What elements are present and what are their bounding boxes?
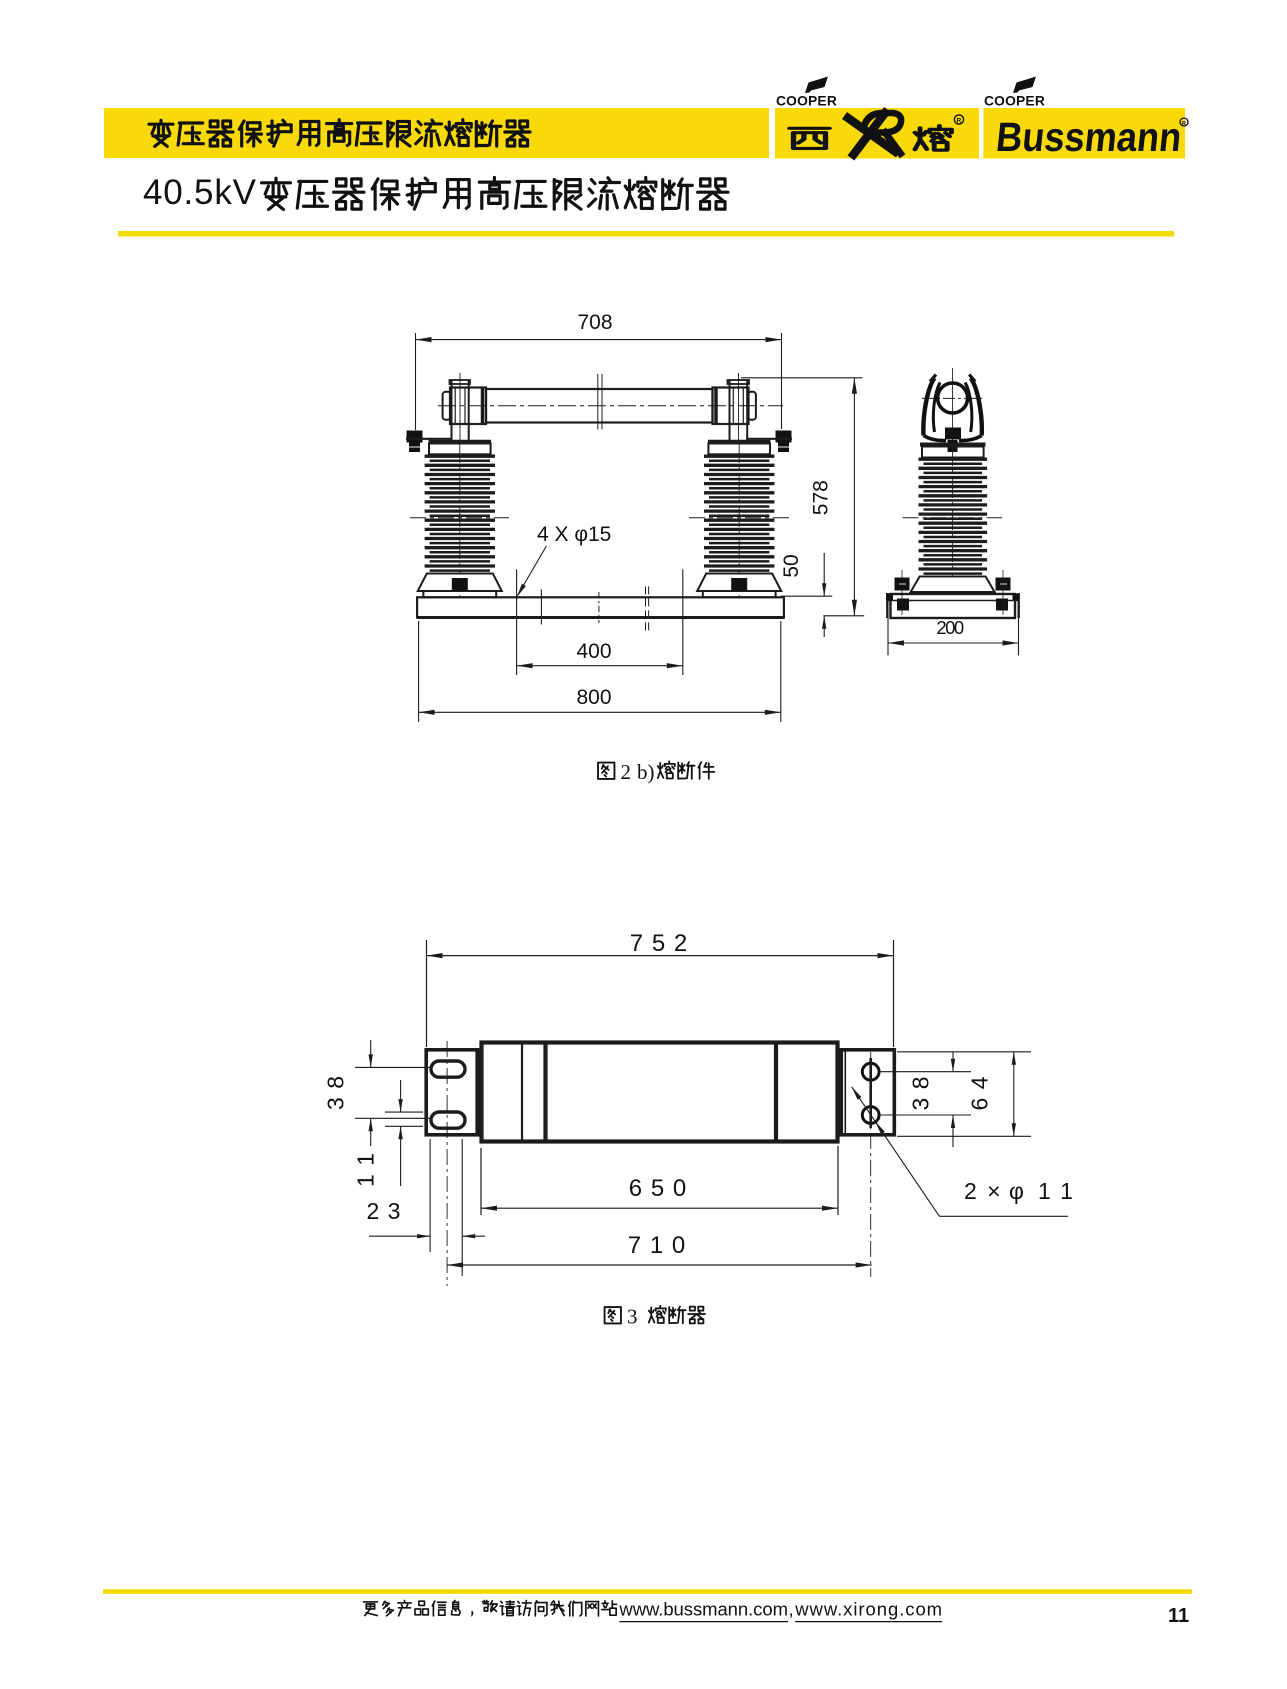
svg-text:800: 800 bbox=[576, 686, 611, 709]
svg-text:11: 11 bbox=[1168, 1605, 1189, 1627]
svg-text:708: 708 bbox=[577, 311, 612, 334]
svg-text:3: 3 bbox=[627, 1305, 638, 1329]
svg-text:4 X φ15: 4 X φ15 bbox=[537, 523, 611, 546]
svg-text:7 5 2: 7 5 2 bbox=[630, 930, 688, 957]
svg-text:www.xirong.com: www.xirong.com bbox=[794, 1599, 942, 1620]
svg-text:R: R bbox=[957, 118, 962, 125]
svg-text:2 3: 2 3 bbox=[367, 1198, 402, 1224]
svg-text:2: 2 bbox=[621, 760, 632, 784]
svg-text:3 8: 3 8 bbox=[908, 1076, 934, 1111]
svg-text:6 5 0: 6 5 0 bbox=[629, 1175, 687, 1202]
svg-text:2 ×: 2 × bbox=[964, 1178, 1003, 1204]
svg-text:Bussmann: Bussmann bbox=[994, 114, 1184, 160]
svg-text:578: 578 bbox=[810, 480, 833, 515]
svg-text:b): b) bbox=[637, 760, 655, 784]
svg-text:,: , bbox=[789, 1599, 794, 1620]
svg-text:400: 400 bbox=[576, 640, 611, 663]
svg-text:200: 200 bbox=[936, 617, 964, 638]
svg-text:7 1 0: 7 1 0 bbox=[628, 1232, 686, 1259]
svg-text:COOPER: COOPER bbox=[984, 94, 1045, 109]
svg-text:φ: φ bbox=[1009, 1178, 1024, 1204]
svg-text:1 1: 1 1 bbox=[353, 1152, 379, 1187]
svg-text:6 4: 6 4 bbox=[967, 1076, 993, 1111]
svg-text:www.bussmann.com: www.bussmann.com bbox=[618, 1599, 788, 1620]
svg-text:40.5kV: 40.5kV bbox=[143, 173, 257, 212]
svg-text:50: 50 bbox=[780, 554, 803, 577]
svg-text:COOPER: COOPER bbox=[776, 94, 837, 109]
svg-text:1 1: 1 1 bbox=[1038, 1178, 1074, 1204]
svg-text:3 8: 3 8 bbox=[323, 1075, 349, 1110]
